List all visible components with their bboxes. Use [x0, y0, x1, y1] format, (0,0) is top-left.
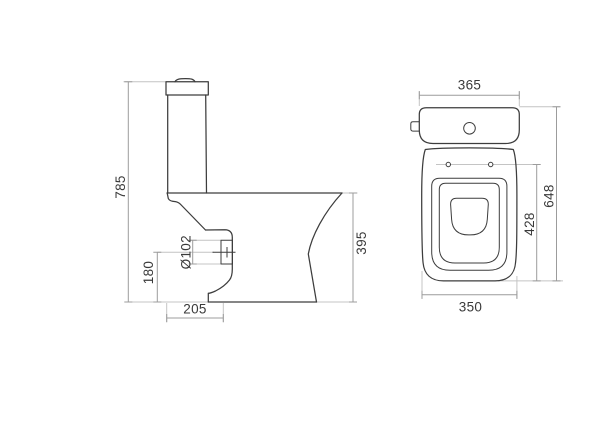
- dim-overall-depth: 648: [542, 107, 561, 281]
- flush-button-top: [464, 123, 476, 135]
- dim-label-overall-height: 785: [113, 175, 128, 198]
- dim-label-bowl-width: 350: [459, 300, 482, 315]
- dim-label-holes-to-front: 428: [522, 212, 537, 235]
- bowl-back-profile: [167, 193, 205, 230]
- dim-bowl-width: 350: [422, 291, 517, 315]
- side-view: 785 180 Ø102 205 395: [113, 79, 369, 323]
- bowl-outline-top: [422, 148, 517, 281]
- drawing-canvas: 785 180 Ø102 205 395: [0, 0, 600, 424]
- seat-inner-ring: [439, 183, 499, 263]
- dim-rim-height: 395: [349, 193, 369, 302]
- technical-drawing: 785 180 Ø102 205 395: [0, 0, 600, 424]
- dim-outlet-height: 180: [141, 252, 161, 302]
- cistern-body-side: [168, 95, 207, 193]
- bowl-front-profile: [308, 193, 342, 302]
- dim-label-outlet-height: 180: [141, 261, 156, 284]
- dim-label-cistern-width: 365: [458, 78, 481, 93]
- dim-label-outlet-diameter: Ø102: [179, 235, 194, 269]
- dim-label-rim-height: 395: [354, 231, 369, 254]
- seat-fixing-hole-right: [489, 162, 493, 166]
- cistern-top: [419, 108, 519, 144]
- cistern-lid-side: [166, 82, 208, 95]
- dim-outlet-setout: 205: [167, 302, 224, 323]
- seat-outer-ring: [432, 178, 507, 270]
- dim-cistern-width: 365: [419, 78, 519, 100]
- water-inlet-tab: [411, 122, 420, 131]
- dim-overall-height: 785: [113, 82, 132, 302]
- dim-holes-to-front: 428: [522, 165, 541, 281]
- water-surface-outline: [451, 198, 489, 235]
- top-view: 365 648 428 350: [411, 78, 563, 315]
- dim-label-overall-depth: 648: [542, 184, 557, 207]
- dim-label-outlet-setout: 205: [183, 302, 206, 317]
- seat-fixing-hole-left: [446, 162, 450, 166]
